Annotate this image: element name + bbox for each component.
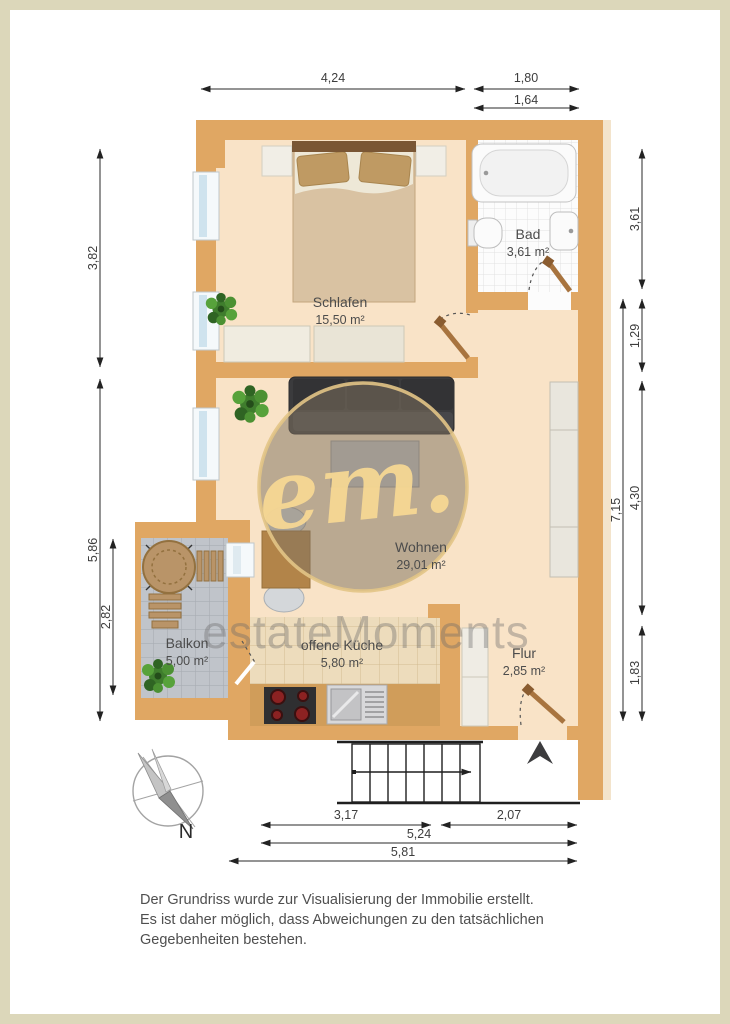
- compass-icon: N: [133, 749, 203, 843]
- room-area-balkon: 5,00 m²: [166, 654, 208, 668]
- dim-label: 2,82: [99, 605, 113, 629]
- dim-label: 4,30: [628, 486, 642, 510]
- window-icon: [193, 172, 219, 240]
- room-area-flur: 2,85 m²: [503, 664, 545, 678]
- room-label-flur: Flur: [512, 645, 536, 661]
- floorplan-drawing: N em. estateMoments Schlafen 15,50 m² Ba…: [0, 0, 730, 1024]
- bad-door-gap: [528, 292, 571, 310]
- entrance-arrow-icon: [527, 741, 553, 764]
- dim-label: 3,82: [86, 246, 100, 270]
- disclaimer-line: Der Grundriss wurde zur Visualisierung d…: [140, 892, 534, 908]
- wardrobe-icon: [224, 326, 310, 362]
- dim-label: 1,29: [628, 324, 642, 348]
- toilet-icon: [468, 218, 502, 248]
- disclaimer-line: Es ist daher möglich, dass Abweichungen …: [140, 912, 544, 928]
- room-area-wohnen: 29,01 m²: [396, 558, 445, 572]
- room-label-schlafen: Schlafen: [313, 294, 367, 310]
- tall-cabinet-icon: [550, 382, 578, 577]
- stove-icon: [264, 687, 316, 724]
- dim-label: 5,24: [407, 827, 431, 841]
- room-label-kueche: offene Küche: [301, 637, 383, 653]
- dim-label: 3,17: [334, 808, 358, 822]
- room-label-wohnen: Wohnen: [395, 539, 447, 555]
- sink-unit-icon: [327, 685, 387, 724]
- dim-label: 7,15: [609, 498, 623, 522]
- dim-label: 1,83: [628, 661, 642, 685]
- window-icon: [193, 408, 219, 480]
- dim-label: 4,24: [321, 71, 345, 85]
- dim-label: 5,86: [86, 538, 100, 562]
- disclaimer-line: Gegebenheiten bestehen.: [140, 932, 307, 948]
- nightstand-icon: [262, 146, 292, 176]
- dim-label: 3,61: [628, 207, 642, 231]
- bed-icon: [292, 141, 416, 302]
- sink-icon: [550, 212, 578, 250]
- nightstand-icon: [416, 146, 446, 176]
- room-area-kueche: 5,80 m²: [321, 656, 363, 670]
- bathtub-icon: [472, 144, 576, 202]
- schlafen-door-gap: [466, 313, 478, 357]
- room-area-schlafen: 15,50 m²: [315, 313, 364, 327]
- watermark-logo: em.: [253, 420, 460, 553]
- entry-door-gap: [518, 726, 567, 740]
- wardrobe-icon: [314, 326, 404, 362]
- dim-label: 2,07: [497, 808, 521, 822]
- room-area-bad: 3,61 m²: [507, 245, 549, 259]
- dim-label: 1,64: [514, 93, 538, 107]
- floorplan-page: N em. estateMoments Schlafen 15,50 m² Ba…: [0, 0, 730, 1024]
- dim-label: 1,80: [514, 71, 538, 85]
- compass-north-label: N: [179, 821, 193, 843]
- disclaimer-text: Der Grundriss wurde zur Visualisierung d…: [140, 892, 544, 948]
- room-label-bad: Bad: [516, 226, 541, 242]
- room-label-balkon: Balkon: [166, 635, 209, 651]
- dim-label: 5,81: [391, 845, 415, 859]
